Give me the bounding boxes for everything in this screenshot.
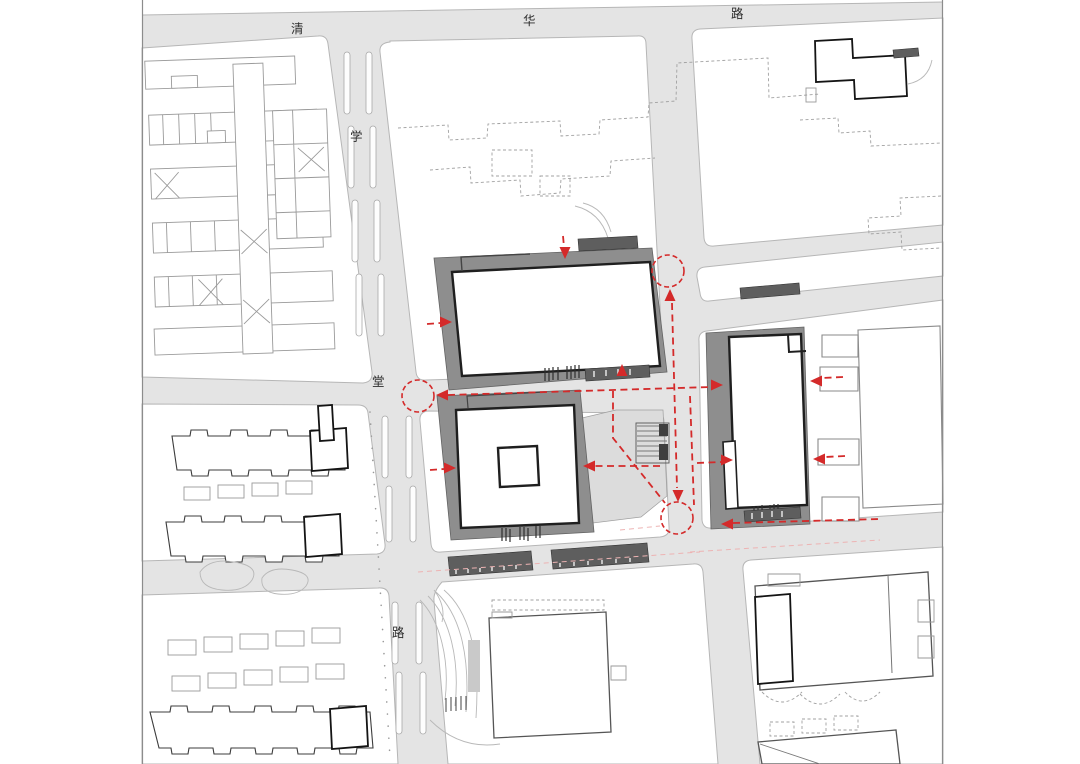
east-building-main bbox=[858, 326, 943, 508]
building-b bbox=[437, 390, 594, 542]
site-plan-drawing: 清 华 路 学 堂 路 bbox=[0, 0, 1080, 764]
landscape-strip bbox=[468, 640, 480, 692]
building-b-courtyard bbox=[498, 446, 539, 487]
dark-bar-north-of-a bbox=[578, 236, 638, 251]
small-slab-by-road bbox=[318, 405, 334, 441]
building-a-roof bbox=[452, 262, 660, 376]
building-c-roof bbox=[729, 334, 807, 508]
street-char-lu1: 路 bbox=[731, 6, 744, 21]
stair-landing-1 bbox=[659, 424, 668, 436]
existing-building-south bbox=[489, 612, 611, 738]
building-c-annex bbox=[723, 441, 738, 509]
site-plan-svg: 清 华 路 学 堂 路 bbox=[0, 0, 1080, 764]
slab-3-end-unit bbox=[330, 706, 368, 749]
southeast-annex bbox=[755, 594, 793, 684]
stair-landing-2 bbox=[659, 444, 668, 460]
building-a bbox=[434, 236, 667, 390]
slab-2-end-unit bbox=[304, 514, 342, 557]
street-char-tang: 堂 bbox=[372, 374, 385, 389]
street-char-lu2: 路 bbox=[392, 625, 405, 640]
street-char-qing: 清 bbox=[291, 21, 304, 36]
street-char-xue: 学 bbox=[350, 129, 363, 144]
street-char-hua: 华 bbox=[523, 13, 536, 28]
dark-bar-northeast bbox=[893, 48, 919, 58]
